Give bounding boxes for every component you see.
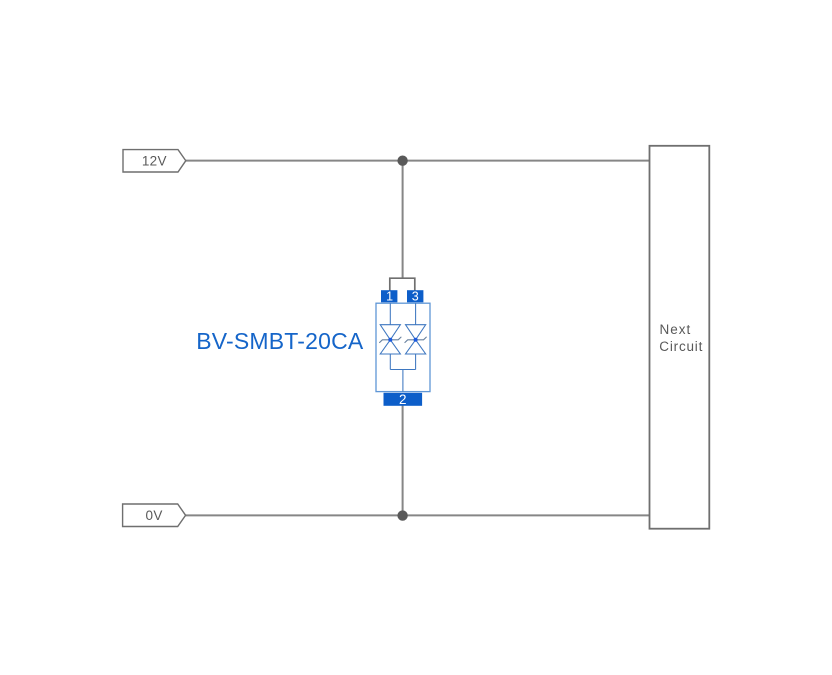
svg-text:Circuit: Circuit xyxy=(659,339,703,354)
svg-text:0V: 0V xyxy=(146,508,163,523)
svg-text:1: 1 xyxy=(386,290,393,304)
svg-text:3: 3 xyxy=(412,290,419,304)
svg-text:Next: Next xyxy=(660,322,692,337)
svg-text:BV-SMBT-20CA: BV-SMBT-20CA xyxy=(196,328,364,354)
svg-text:12V: 12V xyxy=(142,154,167,169)
svg-text:2: 2 xyxy=(399,392,407,407)
